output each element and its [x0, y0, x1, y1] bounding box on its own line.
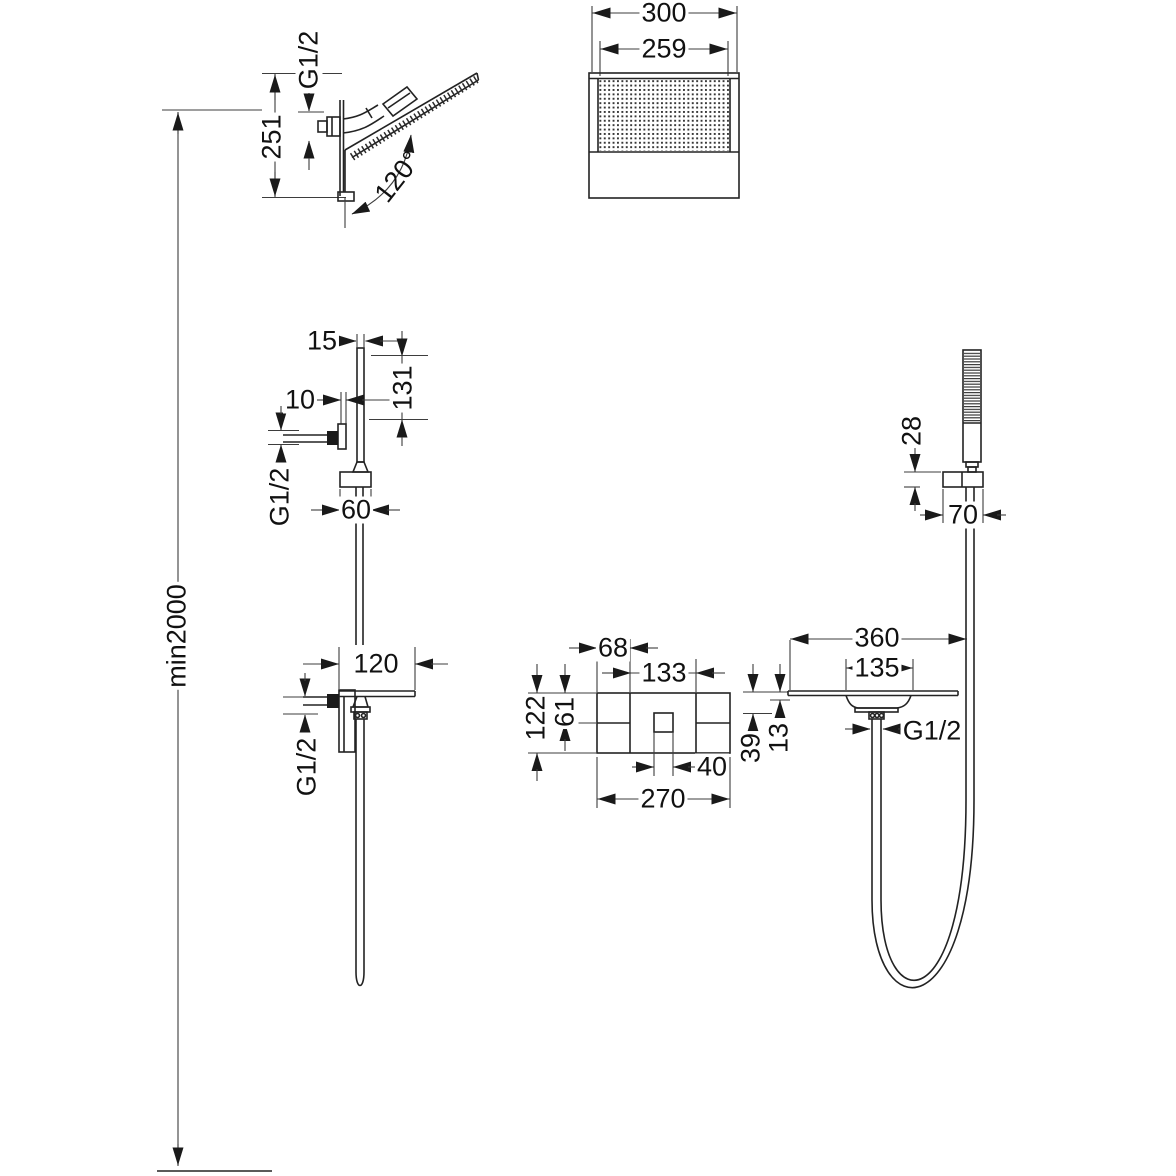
dim-valve-width-label: 270 — [638, 786, 687, 813]
dim-valve-center-section-label: 133 — [639, 660, 688, 687]
dim-hose-connection-label: G1/2 — [901, 718, 964, 745]
dim-column-thickness-label: 15 — [305, 328, 339, 355]
technical-drawing-page: G1/2 251 120° 300 259 15 131 10 G1/2 60 … — [0, 0, 1176, 1176]
dim-head-spray-width-label: 259 — [639, 36, 688, 63]
dim-holder-height-label: 28 — [899, 414, 926, 448]
dim-spout-projection-label: 120 — [351, 651, 400, 678]
dim-column-connection-label: G1/2 — [267, 466, 294, 529]
dim-column-length-label: 131 — [390, 363, 417, 412]
dim-column-bracket-label: 10 — [283, 387, 317, 414]
dim-valve-upper-height-label: 61 — [552, 695, 579, 729]
view-overhead-shower-side — [262, 73, 479, 228]
dim-spout-connection-label: G1/2 — [294, 736, 321, 799]
view-spout-side — [283, 647, 448, 986]
dim-valve-left-section-label: 68 — [596, 635, 630, 662]
dim-valve-handle-label: 40 — [695, 754, 729, 781]
dim-shelf-width-label: 360 — [852, 625, 901, 652]
dim-shelf-funnel-width-label: 135 — [852, 655, 901, 682]
dim-min-height-label: min2000 — [164, 582, 191, 690]
dim-valve-height-label: 122 — [523, 693, 550, 742]
dim-escutcheon-width-label: 60 — [339, 497, 373, 524]
dim-holder-width-label: 70 — [946, 502, 980, 529]
dim-head-width-label: 300 — [639, 0, 688, 27]
dim-shelf-offset-label: 39 — [738, 731, 765, 765]
dim-head-height-label: 251 — [259, 112, 286, 161]
dim-head-connection-label: G1/2 — [296, 29, 323, 92]
dim-shelf-lip-label: 13 — [766, 721, 793, 755]
